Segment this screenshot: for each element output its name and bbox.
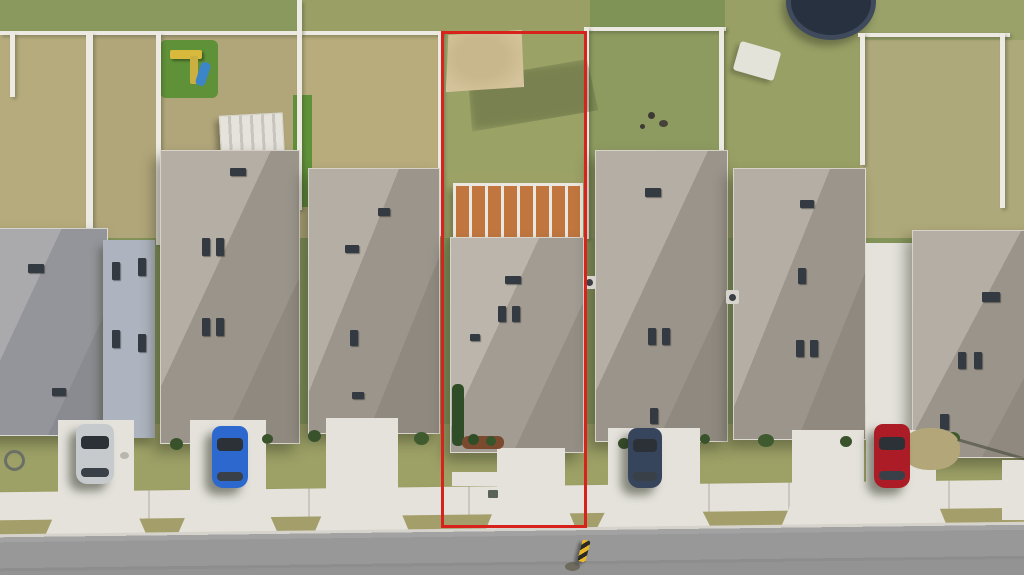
roof-vent: [982, 292, 1000, 302]
house-roof-3: [308, 168, 440, 434]
house-roof-7: [912, 230, 1024, 458]
window: [112, 262, 120, 280]
shrub: [414, 432, 429, 445]
house-roof-6: [733, 168, 866, 440]
skylight: [216, 238, 224, 256]
skylight: [958, 352, 966, 369]
shrub: [170, 438, 183, 450]
windshield: [879, 437, 905, 450]
skylight: [940, 414, 949, 430]
side-fence: [86, 33, 93, 245]
skylight: [216, 318, 224, 336]
skylight: [796, 340, 804, 357]
back-fence: [586, 27, 726, 31]
skylight: [345, 245, 359, 253]
rear-window: [81, 468, 109, 477]
side-fence: [10, 33, 15, 97]
skylight: [974, 352, 982, 369]
shrub: [758, 434, 774, 447]
back-fence: [858, 33, 1010, 37]
house-1-side-wall: [103, 240, 155, 438]
windshield: [633, 439, 657, 452]
skylight: [662, 328, 670, 345]
driveway: [326, 418, 398, 516]
silver-suv: [76, 424, 114, 484]
property-outline: [441, 31, 587, 528]
ac-fan: [586, 279, 593, 286]
roof-vent: [645, 188, 661, 197]
side-fence: [860, 33, 865, 165]
rear-window: [217, 472, 243, 481]
driveway-partial: [1002, 460, 1024, 520]
windshield: [217, 438, 243, 451]
house-roof-1: [0, 228, 108, 436]
window: [112, 330, 120, 348]
skylight: [798, 268, 806, 284]
driveway: [792, 430, 864, 516]
dry-patch: [902, 428, 960, 470]
windshield: [81, 436, 109, 449]
back-fence: [0, 31, 443, 35]
shrub: [700, 434, 710, 444]
yard-debris: [640, 124, 645, 129]
red-sedan: [874, 424, 910, 488]
skylight: [350, 330, 358, 346]
skylight: [28, 264, 44, 273]
shrub: [840, 436, 852, 447]
skylight: [648, 328, 656, 345]
blue-sedan: [212, 426, 248, 488]
shrub: [308, 430, 321, 442]
house-roof-5: [595, 150, 728, 442]
shrub: [262, 434, 273, 444]
roof-vent: [230, 168, 246, 176]
rear-window: [633, 472, 657, 481]
skylight: [202, 318, 210, 336]
skylight: [202, 238, 210, 256]
yard-debris: [659, 120, 668, 127]
skylight: [52, 388, 66, 396]
aerial-photo: [0, 0, 1024, 575]
roof-vent: [352, 392, 364, 399]
ac-fan: [729, 294, 736, 301]
window: [138, 258, 146, 276]
window: [138, 334, 146, 352]
skylight: [810, 340, 818, 357]
roof-vent: [378, 208, 390, 216]
rock: [120, 452, 129, 459]
fire-pit-ring: [4, 450, 25, 471]
navy-sedan: [628, 428, 662, 488]
roof-vent: [800, 200, 814, 208]
yard-debris: [648, 112, 655, 119]
manhole-cover: [565, 562, 580, 571]
skylight: [650, 408, 658, 424]
house-roof-2: [160, 150, 300, 444]
rear-window: [879, 471, 905, 480]
side-fence: [1000, 33, 1005, 208]
